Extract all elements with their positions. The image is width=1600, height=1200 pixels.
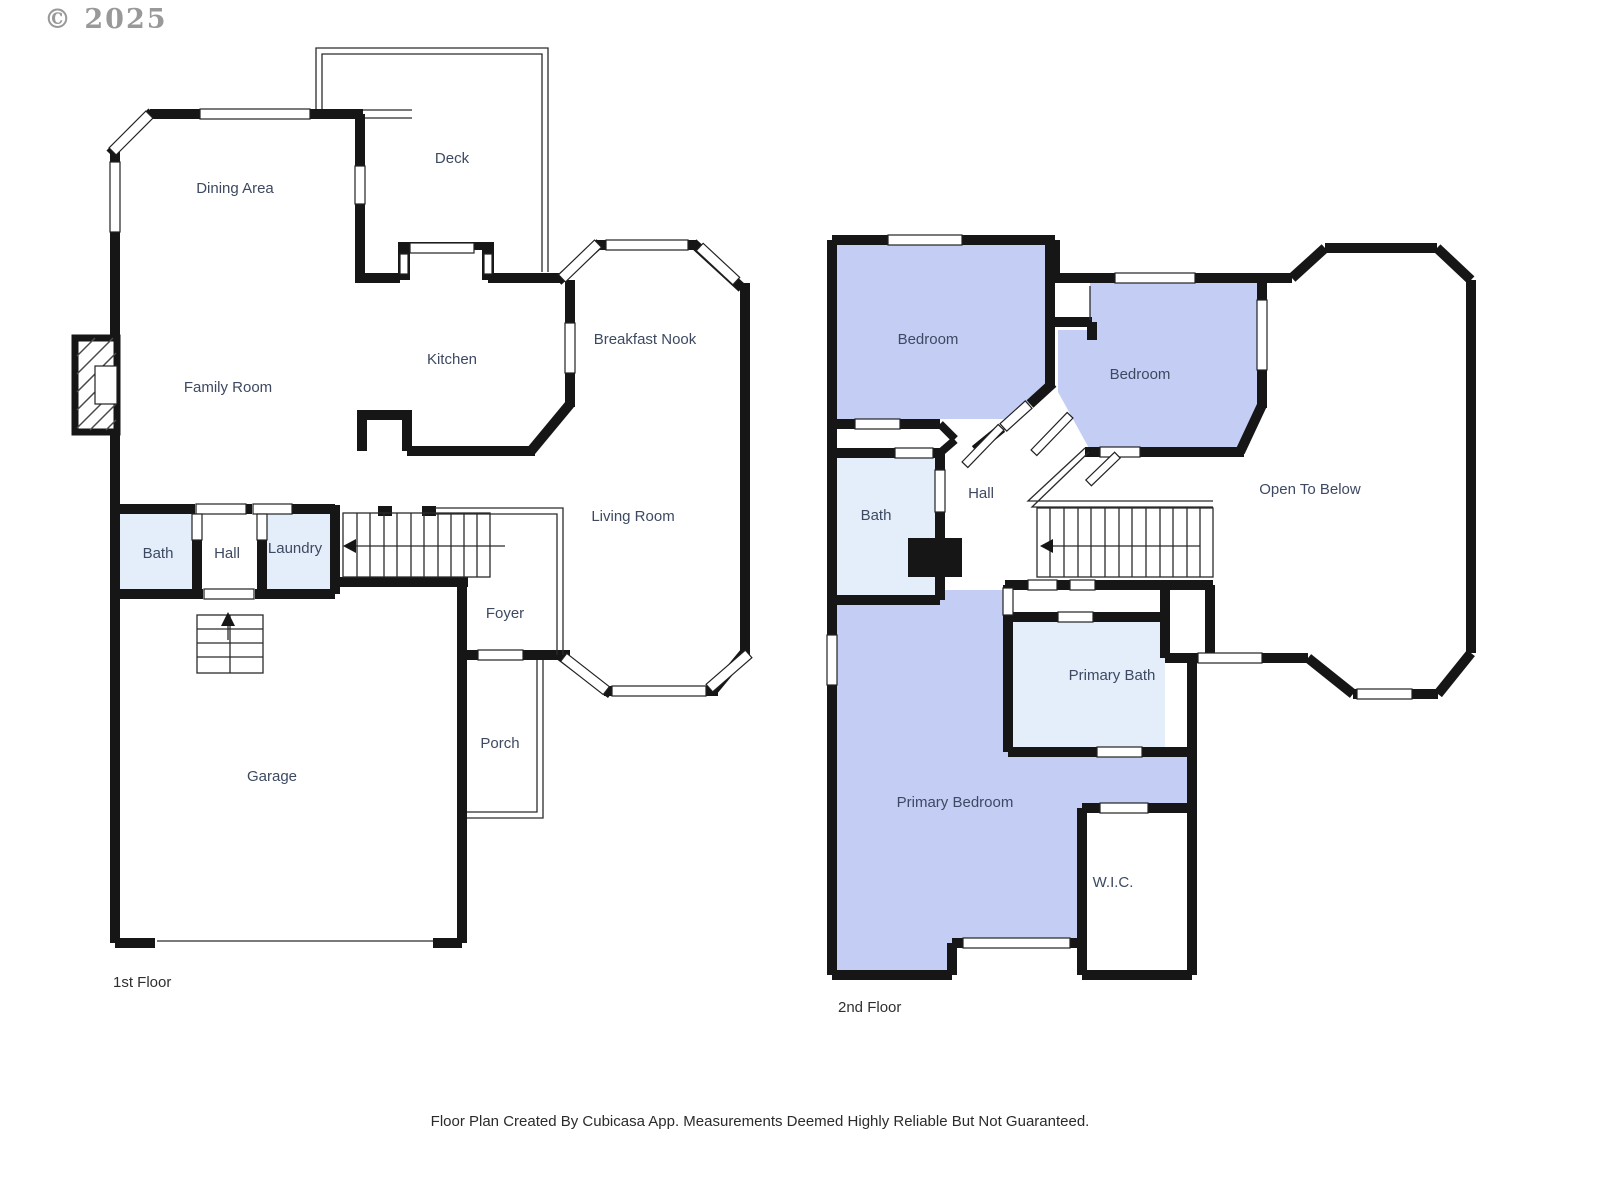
room-label-primary-bedroom: Primary Bedroom (897, 794, 1014, 811)
stairs-second-floor (1037, 508, 1213, 577)
room-label-family-room: Family Room (184, 379, 272, 396)
floorplan-first-floor: Deck Dining Area Kitchen Breakfast Nook … (75, 48, 752, 991)
front-door (478, 650, 523, 660)
kitchen-bay-walls (378, 242, 494, 516)
stairs-to-garage (197, 612, 263, 673)
floorplan-canvas: Deck Dining Area Kitchen Breakfast Nook … (0, 0, 1600, 1200)
floorplan-page: © 2025 (0, 0, 1600, 1200)
room-label-hall-2: Hall (968, 485, 994, 502)
disclaimer-text: Floor Plan Created By Cubicasa App. Meas… (431, 1113, 1090, 1130)
room-label-laundry: Laundry (268, 540, 323, 557)
stairs-up-arrow (221, 612, 235, 626)
wall-void-block (908, 538, 962, 577)
room-label-breakfast-nook: Breakfast Nook (594, 331, 697, 348)
room-label-wic: W.I.C. (1093, 874, 1134, 891)
kitchen-bay-window (410, 243, 474, 253)
deck-outline (316, 48, 548, 272)
breakfast-nook-top-window (606, 240, 688, 250)
first-floor-title: 1st Floor (113, 974, 171, 991)
bedroom-right-side-window (1257, 300, 1267, 370)
fireplace (75, 338, 117, 432)
bedroom-right-top-window (1115, 273, 1195, 283)
room-label-deck: Deck (435, 150, 470, 167)
landing-window (1198, 653, 1262, 663)
kitchen-west-window (565, 323, 575, 373)
first-floor-walls (110, 112, 746, 943)
stairs-down-arrow (343, 539, 356, 553)
room-label-dining: Dining Area (196, 180, 274, 197)
floorplan-second-floor: Bedroom Bedroom Bath Hall Open To Below … (827, 235, 1471, 1016)
room-label-living-room: Living Room (591, 508, 674, 525)
primary-bedroom-south-window (963, 938, 1070, 948)
stairs-first-floor (343, 513, 505, 577)
dining-corner-window (109, 111, 153, 155)
room-label-hall-1: Hall (214, 545, 240, 562)
primary-bedroom-west-window (827, 635, 837, 685)
room-label-bath-1: Bath (143, 545, 174, 562)
living-room-bay-window (612, 686, 706, 696)
room-label-kitchen: Kitchen (427, 351, 477, 368)
room-label-open-to-below: Open To Below (1259, 481, 1361, 498)
open-below-window (1357, 689, 1412, 699)
room-label-garage: Garage (247, 768, 297, 785)
second-floor-title: 2nd Floor (838, 999, 901, 1016)
first-floor-windows (109, 109, 752, 696)
primary-bath-fill (1013, 622, 1165, 747)
dining-top-window (200, 109, 310, 119)
deck-door (355, 166, 365, 204)
room-label-porch: Porch (480, 735, 519, 752)
dining-west-window (110, 162, 120, 232)
room-label-bath-2: Bath (861, 507, 892, 524)
stairs-down-arrow-2 (1040, 539, 1053, 553)
room-label-bedroom-right: Bedroom (1110, 366, 1171, 383)
room-label-bedroom-left: Bedroom (898, 331, 959, 348)
bedroom-left-window (888, 235, 962, 245)
room-label-primary-bath: Primary Bath (1069, 667, 1156, 684)
room-label-foyer: Foyer (486, 605, 524, 622)
hall-corner-stubs (940, 424, 955, 453)
